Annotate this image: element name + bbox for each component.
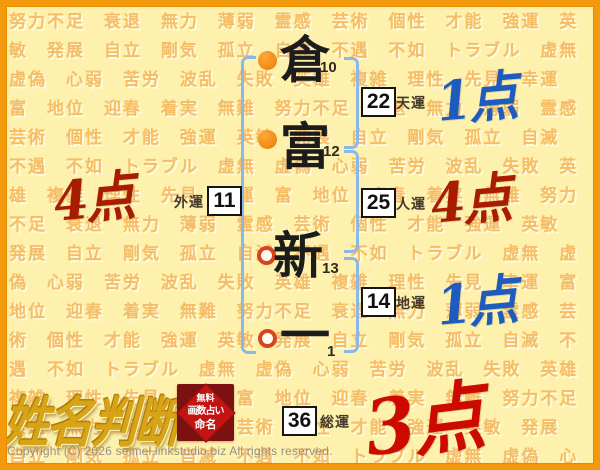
jinun-score: 4点 — [427, 153, 512, 239]
tenun-value-box: 22 — [361, 87, 396, 117]
surname-char1-marker — [258, 51, 277, 70]
chiun-bracket — [344, 257, 359, 353]
gaiun-label: 外運 — [174, 192, 204, 212]
souun-score: 3点 — [358, 354, 487, 470]
name-char-4: 一 — [280, 310, 330, 362]
gaiun-score: 4点 — [50, 151, 135, 237]
jinun-label: 人運 — [396, 194, 426, 214]
free-naming-seal[interactable]: 無料 画数占い 命名 — [177, 384, 234, 441]
tenun-label: 天運 — [396, 93, 426, 113]
seal-line-3: 命名 — [195, 418, 217, 431]
tenun-score: 1点 — [433, 51, 518, 137]
name-char-3-strokes: 13 — [322, 260, 339, 277]
name-char-3: 新 — [273, 230, 323, 282]
souun-label: 総運 — [320, 412, 350, 432]
seal-line-1: 無料 — [196, 394, 214, 405]
name-char-2-strokes: 12 — [323, 143, 340, 160]
gaiun-value-box: 11 — [207, 186, 242, 216]
givenname-char2-marker — [258, 329, 277, 348]
jinun-bracket — [344, 150, 359, 253]
seal-line-2: 画数占い — [188, 405, 224, 418]
copyright-text: Copyright (C) 2026 seimei.linkstudio.biz… — [7, 444, 333, 458]
tenun-bracket — [344, 57, 359, 149]
chiun-value-box: 14 — [361, 287, 396, 317]
jinun-value-box: 25 — [361, 188, 396, 218]
souun-value-box: 36 — [282, 406, 317, 436]
surname-char2-marker — [258, 130, 277, 149]
name-char-4-strokes: 1 — [327, 343, 335, 360]
chiun-score: 1点 — [433, 255, 518, 341]
seimei-handan-chart: 努力不足 衰退 無力 薄弱 霊感 芸術 個性 才能 強運 英敏 発展 自立 剛気… — [0, 0, 600, 470]
gaiun-bracket — [241, 56, 256, 354]
chiun-label: 地運 — [396, 293, 426, 313]
seal-text: 無料 画数占い 命名 — [177, 384, 234, 441]
name-char-1-strokes: 10 — [320, 59, 337, 76]
